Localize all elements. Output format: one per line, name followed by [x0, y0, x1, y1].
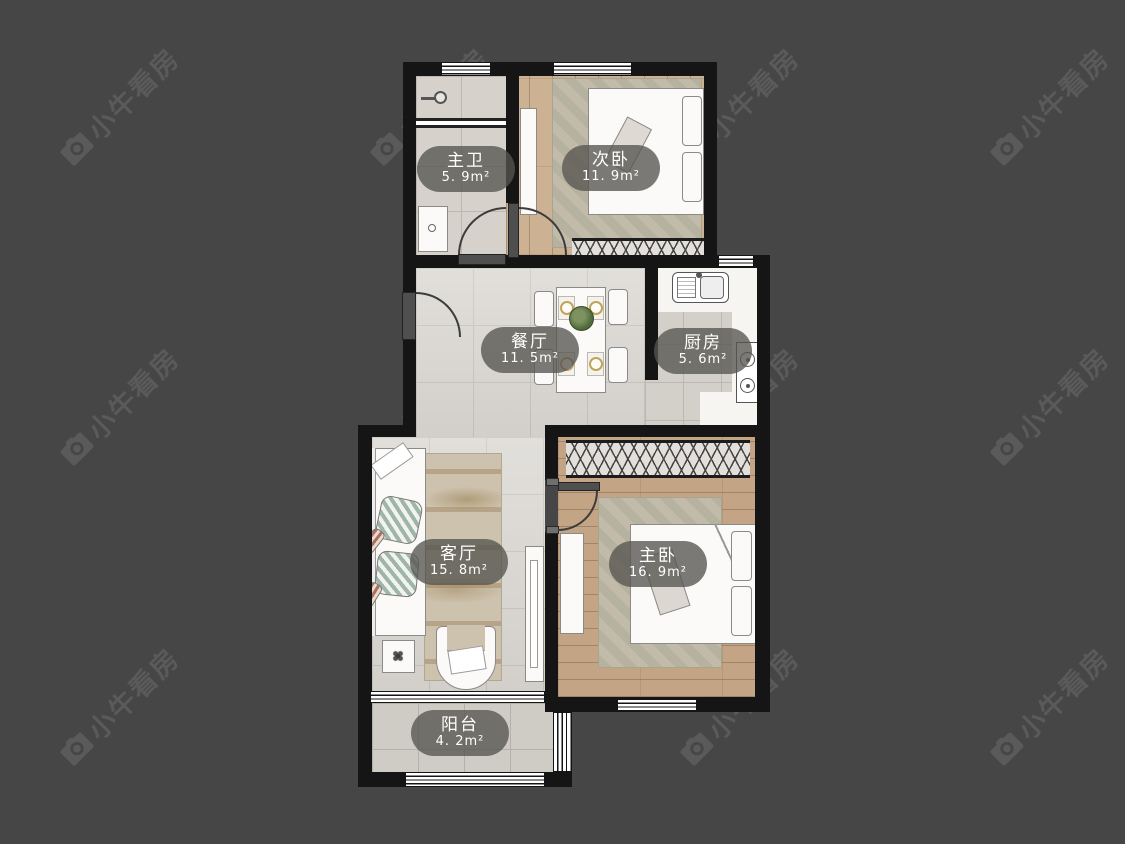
room-label-living: 客厅 15. 8m² [410, 539, 508, 585]
flower-icon [392, 650, 404, 662]
window [617, 699, 697, 712]
pillow [731, 586, 752, 636]
room-name: 主卫 [447, 152, 485, 172]
room-area: 16. 9m² [629, 566, 687, 581]
second-bedroom-cabinet [520, 108, 537, 215]
wall [403, 255, 717, 268]
shower-head [434, 91, 447, 104]
dresser [560, 533, 584, 634]
room-name: 餐厅 [511, 333, 549, 353]
window [718, 255, 754, 268]
place-setting [587, 352, 604, 376]
room-area: 15. 8m² [430, 564, 488, 579]
wall [545, 425, 770, 437]
room-name: 主卧 [639, 547, 677, 567]
bath-partition [416, 118, 506, 128]
room-label-second-bedroom: 次卧 11. 9m² [562, 145, 660, 191]
master-bedroom-door-leaf [558, 482, 600, 491]
room-label-master-bedroom: 主卧 16. 9m² [609, 541, 707, 587]
room-name: 次卧 [592, 151, 630, 171]
pillow [682, 96, 702, 146]
wall [545, 772, 572, 787]
bathroom-door-leaf [458, 254, 506, 265]
tv-soundbar [530, 560, 538, 668]
room-name: 厨房 [684, 334, 722, 354]
wall [545, 532, 558, 697]
pillow [682, 152, 702, 202]
sink-faucet [696, 272, 702, 278]
wall [358, 772, 407, 787]
wall [704, 76, 717, 255]
room-label-balcony: 阳台 4. 2m² [411, 710, 509, 756]
room-name: 阳台 [441, 716, 479, 736]
room-area: 4. 2m² [436, 735, 485, 750]
room-label-kitchen: 厨房 5. 6m² [654, 328, 752, 374]
window [553, 712, 572, 772]
vanity-basin [428, 224, 436, 232]
dining-chair [608, 289, 628, 325]
second-bedroom-door-leaf [508, 203, 519, 258]
room-area: 11. 5m² [501, 352, 559, 367]
sink-drainboard [677, 277, 696, 298]
window [441, 62, 491, 76]
wall [358, 425, 416, 437]
wall [358, 437, 372, 712]
floor-plan: 主卫 5. 9m² 次卧 11. 9m² 餐厅 11. 5m² 厨房 5. 6m… [0, 0, 1125, 844]
room-name: 客厅 [440, 545, 478, 565]
wall [755, 437, 770, 697]
room-area: 5. 6m² [679, 353, 728, 368]
sink-basin [700, 276, 724, 299]
wall [545, 437, 558, 480]
table-plant [569, 306, 594, 331]
window [405, 772, 545, 787]
room-area: 5. 9m² [442, 171, 491, 186]
dining-chair [534, 291, 554, 327]
room-label-master-bath: 主卫 5. 9m² [417, 146, 515, 192]
room-area: 11. 9m² [582, 170, 640, 185]
dining-chair [608, 347, 628, 383]
wardrobe [566, 440, 750, 478]
entry-door-leaf [402, 292, 416, 340]
window [553, 62, 632, 76]
balcony-sliding-door [370, 691, 545, 703]
pillow [731, 531, 752, 581]
room-label-dining: 餐厅 11. 5m² [481, 327, 579, 373]
stove-burner [740, 378, 755, 393]
wall [757, 268, 770, 437]
wall [645, 268, 658, 380]
